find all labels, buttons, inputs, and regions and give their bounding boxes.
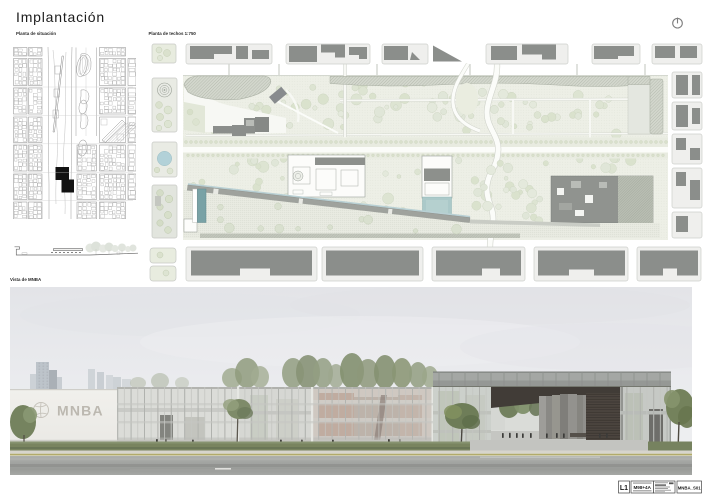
svg-text:L1: L1 [620, 485, 628, 492]
svg-text:M98+4A: M98+4A [633, 485, 651, 490]
svg-text:MNBA_S01: MNBA_S01 [678, 485, 702, 490]
svg-text:MNBA: MNBA [57, 403, 104, 419]
